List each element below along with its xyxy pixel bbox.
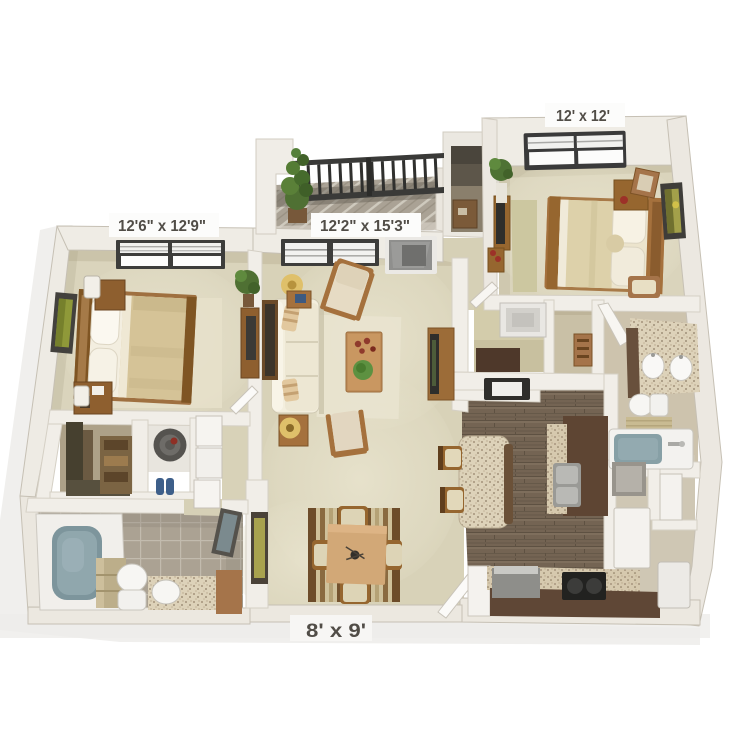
svg-text:12'2" x 15'3": 12'2" x 15'3" [320, 218, 410, 235]
svg-text:12'6" x 12'9": 12'6" x 12'9" [118, 218, 206, 235]
svg-text:12' x 12': 12' x 12' [556, 108, 610, 125]
svg-text:8' x 9': 8' x 9' [306, 621, 366, 642]
